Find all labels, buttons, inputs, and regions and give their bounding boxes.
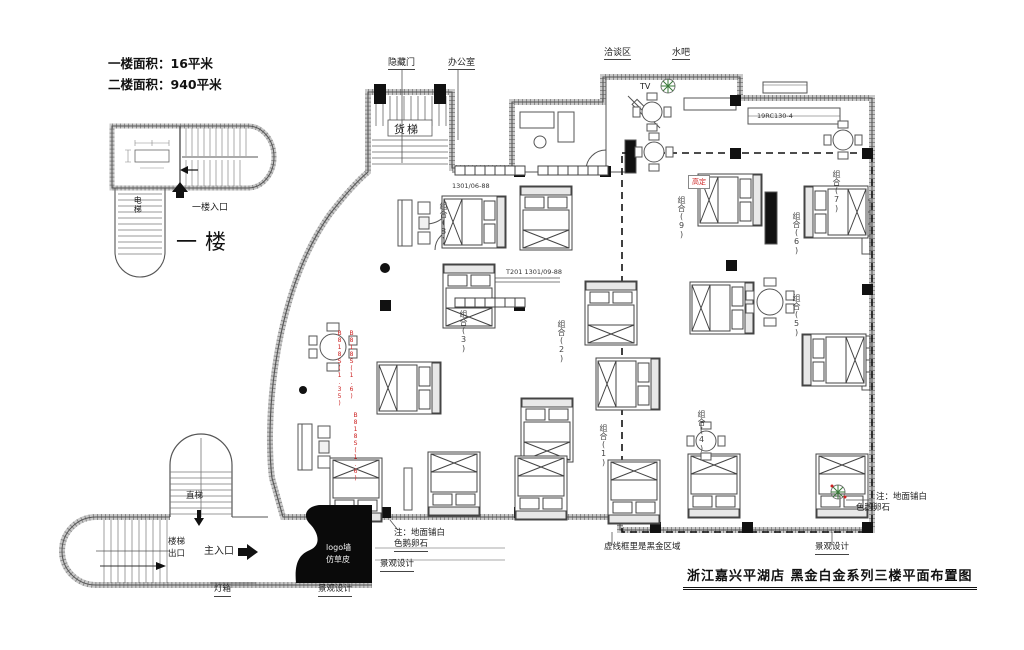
red-model-label-1: B818S(1.35) xyxy=(336,330,343,407)
custom-red-plaque: 高定 xyxy=(688,175,710,189)
floor-note-right-1: 注：地面铺白 xyxy=(876,492,927,503)
main-entrance-label: 主入口 xyxy=(204,546,234,558)
red-model-label-2: B818S(1.6) xyxy=(348,330,355,400)
first-floor-entrance-label: 一楼入口 xyxy=(192,203,228,213)
combo-label-9: 组合(9) xyxy=(676,196,687,239)
furniture-symbols xyxy=(298,79,862,499)
stair-exit-label-1: 楼梯 xyxy=(168,538,185,548)
floor-note-left: 注：地面铺白 色鹅卵石 xyxy=(394,528,445,552)
combo-label-4: 组合(4) xyxy=(696,410,707,453)
combo-label-3: 组合(3) xyxy=(458,310,469,353)
combo-label-5: 组合(5) xyxy=(791,294,802,337)
drawing-title: 浙江嘉兴平湖店 黑金白金系列三楼平面布置图 xyxy=(683,565,977,590)
water-bar-label: 水吧 xyxy=(672,48,690,60)
floor-note-right-2: 色鹅卵石 xyxy=(856,503,927,514)
model-number-1: 1301/06-88 xyxy=(452,182,490,190)
area-info-panel: 一楼面积：16平米 二楼面积：940平米 xyxy=(108,54,222,95)
logo-wall-label: logo墙 xyxy=(326,543,351,552)
combo-label-6: 组合(6) xyxy=(791,212,802,255)
floor-note-right: 注：地面铺白 色鹅卵石 xyxy=(876,492,927,514)
area-line-2: 二楼面积：940平米 xyxy=(108,75,222,96)
model-number-3: 19RC130-4 xyxy=(757,112,793,120)
landscape-design-label-1: 景观设计 xyxy=(380,560,414,572)
floor-plan-drawing xyxy=(0,0,1024,650)
straight-elevator-label: 直梯 xyxy=(186,492,203,502)
area-line-1: 一楼面积：16平米 xyxy=(108,54,222,75)
elevator-label: 电梯 xyxy=(133,196,142,214)
combo-label-7: 组合(7) xyxy=(831,170,842,213)
stair-exit-label-2: 出口 xyxy=(168,550,185,560)
tv-label: TV xyxy=(640,82,650,91)
office-label: 办公室 xyxy=(448,58,475,70)
floor-note-left-2: 色鹅卵石 xyxy=(394,539,428,552)
floor-note-left-1: 注：地面铺白 xyxy=(394,528,445,539)
turf-label: 仿草皮 xyxy=(326,555,350,564)
combo-label-1: 组合(1) xyxy=(598,424,609,467)
model-number-2: T201 1301/09-88 xyxy=(506,268,562,276)
floor-plan-page: 一楼面积：16平米 二楼面积：940平米 一楼 一楼入口 电梯 货梯 隐藏门 办… xyxy=(0,0,1024,650)
landscape-design-label-2: 景观设计 xyxy=(318,585,352,597)
hidden-door-label: 隐藏门 xyxy=(388,58,415,70)
freight-elevator-label: 货梯 xyxy=(394,124,420,137)
combo-label-2: 组合(2) xyxy=(556,320,567,363)
light-box-label: 灯箱 xyxy=(214,585,231,597)
black-gold-zone-label: 虚线框里是黑金区域 xyxy=(604,543,681,553)
landscape-design-label-3: 景观设计 xyxy=(815,543,849,555)
negotiation-area-label: 洽谈区 xyxy=(604,48,631,60)
first-floor-title: 一楼 xyxy=(176,226,234,256)
combo-label-8: 组合(8) xyxy=(438,202,449,245)
red-model-label-3: B818S(1.6) xyxy=(352,412,359,482)
